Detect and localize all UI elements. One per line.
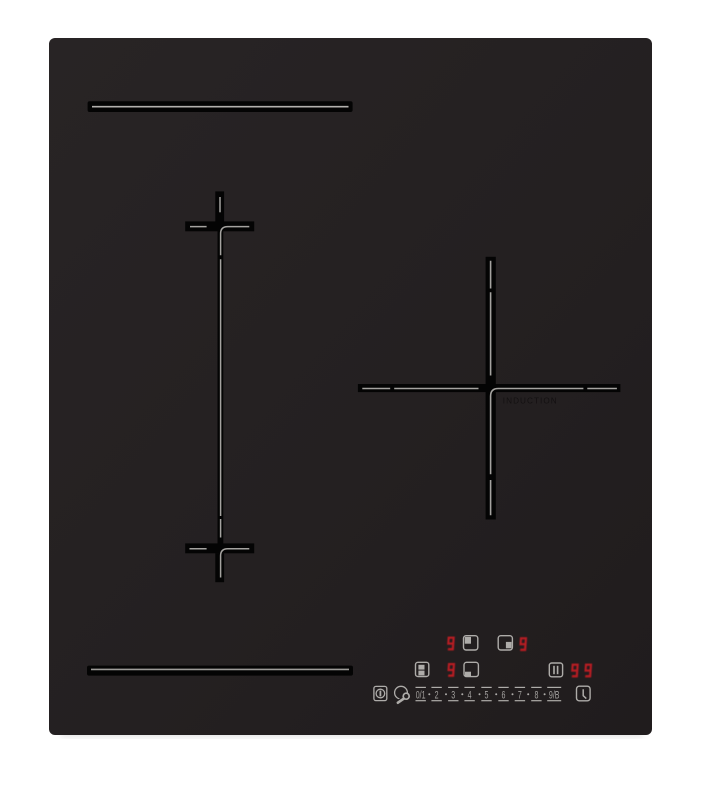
svg-text:0/1: 0/1 (416, 689, 426, 702)
svg-text:6: 6 (502, 689, 506, 702)
svg-text:9/B: 9/B (549, 689, 560, 702)
svg-text:4: 4 (468, 689, 472, 702)
svg-text:2: 2 (435, 689, 439, 702)
svg-text:INDUCTION: INDUCTION (503, 396, 558, 405)
svg-text:5: 5 (485, 689, 489, 702)
svg-text:3: 3 (451, 689, 455, 702)
svg-text:7: 7 (518, 689, 522, 702)
svg-text:8: 8 (534, 689, 538, 702)
